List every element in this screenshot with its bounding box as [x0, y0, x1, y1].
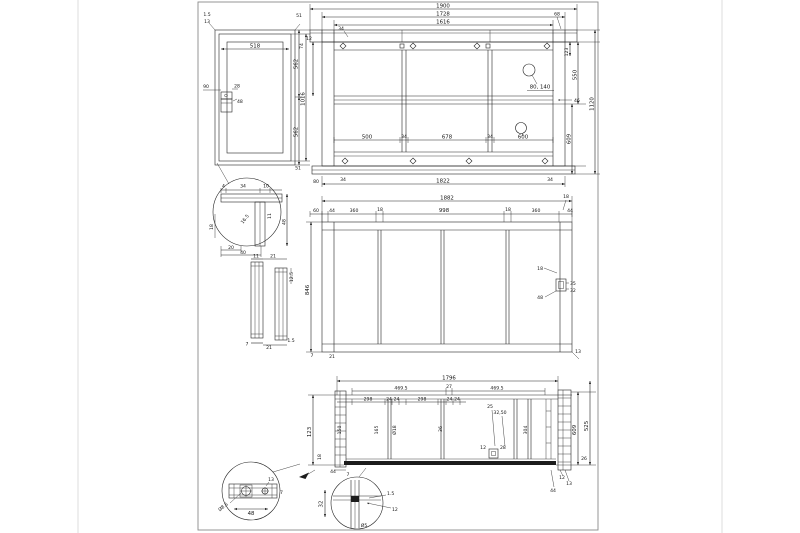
- dim-detaila-20: 20: [228, 245, 234, 251]
- latch-marks-top: [340, 43, 550, 49]
- dim-front-post-34-left: 34: [401, 134, 407, 140]
- detail-a-circle: 4 34 10 48 11 16.5 20 40 18: [209, 178, 288, 257]
- balloon-callout-600: 600: [516, 123, 529, 141]
- dim-mid-18-right: 18: [505, 207, 511, 213]
- dim-front-left-12: 12: [306, 36, 312, 42]
- dim-detaila-48: 48: [282, 219, 288, 225]
- dim-side-518: 518: [250, 44, 261, 50]
- dim-detailb-48: 48: [248, 511, 255, 517]
- dim-front-h609: 609: [567, 133, 573, 144]
- dim-bottom-28-square: 28: [500, 445, 506, 451]
- dim-mid-360-right: 360: [532, 208, 541, 214]
- dim-profile-21-bot: 21: [266, 345, 272, 351]
- dim-mid-7: 7: [311, 353, 314, 359]
- cad-sheet-image: 1900 1728 1616 34 68: [0, 0, 800, 533]
- dim-front-h1120: 1120: [590, 97, 596, 111]
- balloon-600-label: 600: [518, 135, 529, 141]
- dim-front-post-34-right: 34: [487, 134, 493, 140]
- dim-front-h550: 550: [573, 69, 579, 80]
- dim-detaila-4: 4: [222, 184, 225, 190]
- dim-bottom-dia18: Ø18: [391, 425, 398, 435]
- dim-bottom-27: 27: [446, 384, 452, 390]
- dim-mid-360-left: 360: [350, 208, 359, 214]
- dim-mid-18-leader: 18: [537, 266, 543, 272]
- dim-profile-21-top: 21: [270, 254, 276, 260]
- dim-bottom-44-br: 44: [550, 488, 556, 494]
- dim-mid-overall-width: 1882: [440, 196, 454, 202]
- dim-detailb-dia8p5: Ø8.5: [217, 501, 230, 513]
- dim-mid-18-top-right: 18: [563, 194, 569, 200]
- dim-bottom-24-c: 24: [447, 397, 453, 403]
- dim-front-outer-width: 1728: [436, 12, 450, 18]
- dim-bottom-469p5-right: 469.5: [490, 386, 503, 392]
- dim-front-corner-left: 34: [338, 26, 344, 32]
- dim-mid-21: 21: [329, 354, 335, 360]
- balloon-callout-80-140: 80, 140: [523, 64, 554, 91]
- dim-mid-60: 60: [313, 208, 319, 214]
- hinge-bracket: [221, 92, 232, 112]
- dim-front-seg-678: 678: [442, 135, 453, 141]
- dim-bottom-3250: 32,50: [493, 410, 506, 416]
- latch-marks-bottom: [342, 158, 548, 164]
- dim-bottom-13-br: 13: [566, 481, 572, 487]
- dim-side-90: 90: [203, 84, 209, 90]
- dim-side-48: 48: [237, 99, 243, 105]
- dim-mid-height: 846: [305, 284, 311, 295]
- balloon-80-140-label: 80, 140: [530, 85, 551, 91]
- dim-side-74: 74: [299, 43, 305, 49]
- dim-bottom-165: 165: [374, 426, 380, 435]
- dim-bottom-12-square: 12: [480, 445, 486, 451]
- dim-bottom-12-br: 12: [559, 475, 565, 481]
- dim-bottom-24-b: 24: [394, 397, 400, 403]
- dim-detaila-18: 18: [209, 224, 215, 230]
- dim-bottom-36: 36: [438, 426, 444, 432]
- dim-detailc-dia5: Ø5: [361, 522, 368, 529]
- dim-side-51-top: 51: [296, 13, 302, 19]
- dim-front-corner-right: 68: [554, 12, 560, 18]
- page-edges: [78, 0, 722, 533]
- dim-bottom-26: 26: [581, 456, 587, 462]
- dim-mid-48-leader: 48: [537, 295, 543, 301]
- dim-side-1p5: 1.5: [203, 12, 210, 18]
- dim-front-seg-500: 500: [362, 135, 373, 141]
- profile-sections: 11 21 12.5 7 21 1.5: [246, 254, 295, 352]
- dim-bottom-h123: 123: [307, 427, 313, 437]
- dim-detaila-11: 11: [267, 213, 273, 219]
- dim-bottom-298-right: 298: [418, 397, 427, 403]
- dim-front-bottom-width: 1822: [436, 179, 450, 185]
- dim-mid-44-left: 44: [329, 208, 335, 214]
- cad-drawing: 1900 1728 1616 34 68: [0, 0, 800, 533]
- dim-mid-32: 32: [570, 288, 576, 294]
- dim-mid-35: 35: [570, 281, 576, 287]
- dim-bottom-h525: 525: [584, 421, 590, 431]
- dim-detaila-40: 40: [240, 250, 246, 256]
- front-view: 1900 1728 1616 34 68: [306, 4, 600, 188]
- dim-side-562-bot: 562: [294, 127, 300, 137]
- bottom-view: 1796 469.5 27 469.5 298 24 24 298 24 24 …: [299, 376, 596, 495]
- dim-bottom-h609: 609: [572, 424, 578, 435]
- dim-mid-44-right: 44: [567, 208, 573, 214]
- dim-detailc-12: 12: [392, 507, 398, 513]
- side-view: 1.5 13 51 74 518 562 562 1016 90 28 48 5…: [203, 12, 310, 184]
- dim-front-inner-width: 1616: [436, 20, 450, 26]
- dim-bottom-18: 18: [317, 454, 323, 460]
- dim-bottom-304: 304: [523, 426, 529, 435]
- middle-view: 1882 60 44 360 18 998 18 360 18 44 846 1…: [305, 194, 581, 360]
- dim-detaila-16p5: 16.5: [240, 213, 251, 225]
- dim-profile-11: 11: [253, 254, 259, 260]
- dim-profile-1p5: 1.5: [287, 338, 294, 344]
- dim-bottom-298-left: 298: [364, 397, 373, 403]
- dim-bottom-25: 25: [487, 404, 493, 410]
- dim-profile-12p5: 12.5: [289, 272, 295, 282]
- dim-front-h123: 123: [564, 48, 570, 57]
- dim-detailb-7: 7: [280, 490, 283, 496]
- dim-side-562-top: 562: [294, 59, 300, 69]
- dim-front-34-br: 34: [547, 177, 553, 183]
- dim-front-34-bl: 34: [340, 177, 346, 183]
- dim-bottom-24-d: 24: [454, 397, 460, 403]
- dim-detailc-1p5: 1.5: [387, 491, 394, 497]
- dim-bottom-7: 7: [347, 472, 350, 478]
- dim-side-51-bot: 51: [295, 166, 301, 172]
- detail-b-circle: 13 7 48 Ø8.5: [217, 462, 300, 520]
- dim-detailb-13: 13: [268, 477, 274, 483]
- dim-profile-7: 7: [246, 342, 249, 348]
- dim-mid-18-left: 18: [377, 207, 383, 213]
- dim-detailc-32: 32: [319, 501, 325, 508]
- dim-front-80: 80: [313, 179, 319, 185]
- dim-detaila-34: 34: [240, 184, 246, 190]
- dim-front-overall-width: 1900: [436, 4, 450, 10]
- dim-bottom-150: 150: [337, 426, 343, 435]
- dim-side-28: 28: [234, 84, 240, 90]
- dim-mid-998: 998: [439, 208, 450, 214]
- dim-side-13: 13: [204, 19, 210, 25]
- dim-side-1016: 1016: [301, 92, 307, 106]
- dim-front-46: 46: [574, 98, 580, 104]
- dim-bottom-overall-width: 1796: [442, 376, 456, 382]
- dim-detaila-10: 10: [263, 184, 269, 190]
- dim-mid-13: 13: [575, 349, 581, 355]
- dim-bottom-469p5-left: 469.5: [394, 386, 407, 392]
- detail-c-circle: 32 1.5 12 Ø5: [319, 468, 398, 529]
